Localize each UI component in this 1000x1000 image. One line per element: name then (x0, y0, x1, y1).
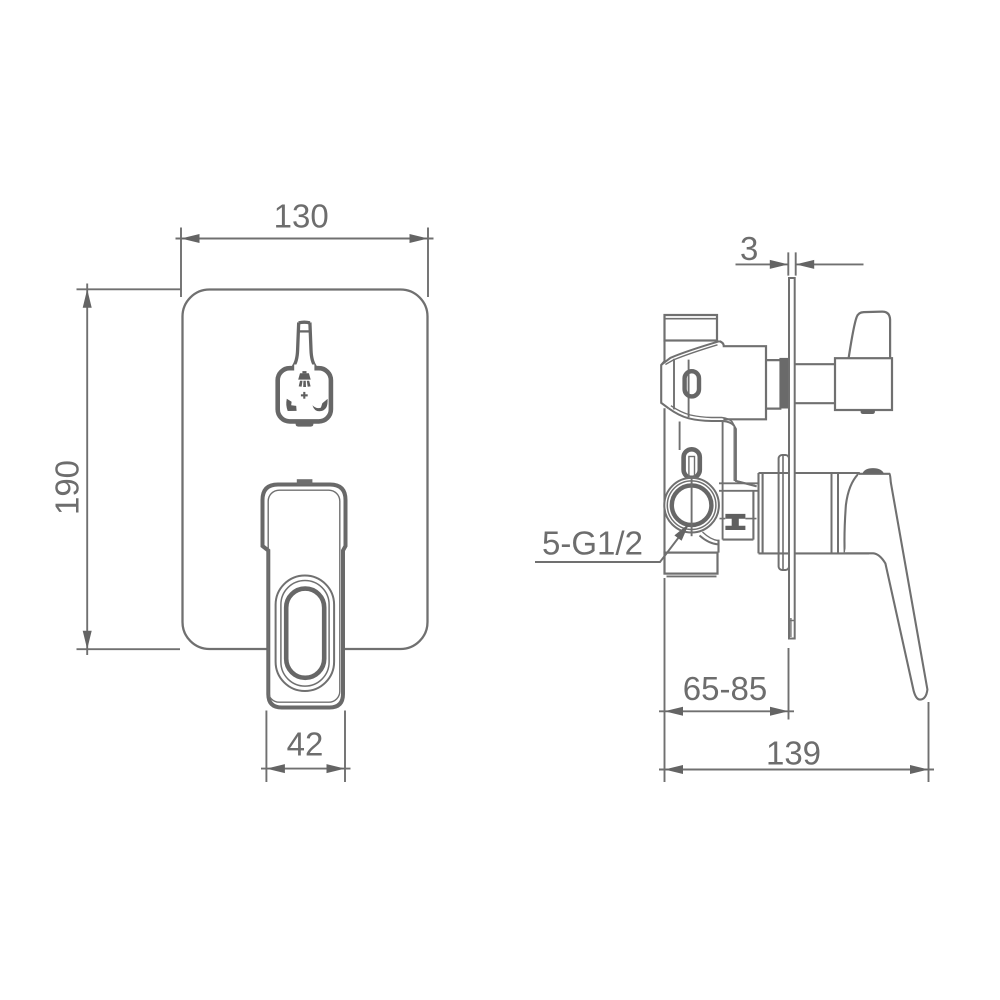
svg-text:65-85: 65-85 (683, 670, 767, 707)
svg-text:42: 42 (287, 726, 324, 763)
svg-text:130: 130 (274, 197, 329, 234)
svg-text:190: 190 (49, 460, 86, 515)
svg-text:5-G1/2: 5-G1/2 (542, 524, 643, 561)
svg-text:139: 139 (766, 734, 821, 771)
svg-text:3: 3 (740, 230, 758, 267)
